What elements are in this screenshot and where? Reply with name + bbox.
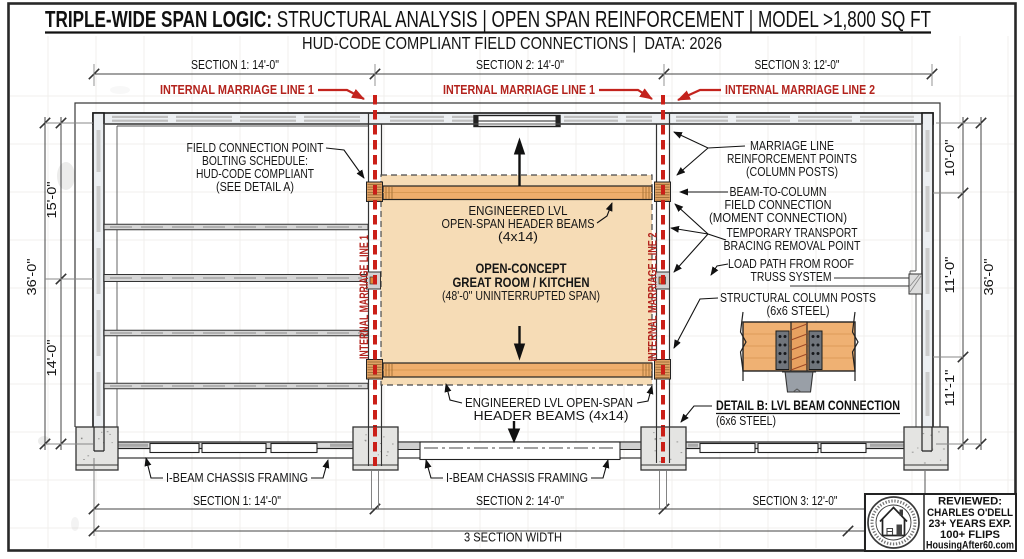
- svg-text:36'-0": 36'-0": [25, 259, 39, 296]
- svg-text:HEADER BEAMS (4x14): HEADER BEAMS (4x14): [474, 408, 629, 423]
- svg-text:INTERNAL MARRIAGE LINE 1: INTERNAL MARRIAGE LINE 1: [443, 83, 595, 97]
- svg-text:MARRIAGE LINE: MARRIAGE LINE: [750, 139, 834, 153]
- svg-text:15'-0": 15'-0": [45, 182, 59, 219]
- svg-text:REVIEWED:: REVIEWED:: [938, 496, 1002, 508]
- svg-text:(SEE DETAIL A): (SEE DETAIL A): [216, 180, 294, 194]
- svg-text:FIELD CONNECTION POINT: FIELD CONNECTION POINT: [187, 141, 324, 155]
- svg-text:SECTION 1: 14'-0": SECTION 1: 14'-0": [191, 58, 279, 72]
- svg-text:HousingAfter60.com: HousingAfter60.com: [926, 540, 1014, 552]
- svg-text:ENGINEERED LVL: ENGINEERED LVL: [469, 204, 568, 218]
- svg-text:36'-0": 36'-0": [982, 259, 996, 296]
- svg-text:HUD-CODE COMPLIANT: HUD-CODE COMPLIANT: [196, 167, 314, 181]
- svg-text:(6x6 STEEL): (6x6 STEEL): [767, 304, 830, 318]
- svg-text:INTERNAL MARRIAGE LINE 2: INTERNAL MARRIAGE LINE 2: [725, 83, 875, 97]
- svg-text:(COLUMN POSTS): (COLUMN POSTS): [746, 165, 838, 179]
- svg-text:11'-1": 11'-1": [943, 370, 957, 407]
- svg-text:I-BEAM CHASSIS FRAMING: I-BEAM CHASSIS FRAMING: [166, 471, 308, 485]
- svg-text:OPEN-SPAN HEADER BEAMS: OPEN-SPAN HEADER BEAMS: [442, 217, 595, 231]
- svg-text:(6x6 STEEL): (6x6 STEEL): [716, 413, 776, 428]
- svg-text:11'-0": 11'-0": [943, 257, 957, 294]
- svg-text:(MOMENT CONNECTION): (MOMENT CONNECTION): [709, 211, 847, 225]
- svg-text:SECTION 3: 12'-0": SECTION 3: 12'-0": [755, 58, 840, 72]
- svg-text:SECTION 2: 14'-0": SECTION 2: 14'-0": [476, 494, 564, 508]
- svg-text:INTERNAL MARRIAGE LINE 1: INTERNAL MARRIAGE LINE 1: [359, 235, 371, 359]
- svg-text:BRACING REMOVAL POINT: BRACING REMOVAL POINT: [724, 239, 861, 253]
- svg-text:REINFORCEMENT POINTS: REINFORCEMENT POINTS: [727, 152, 857, 166]
- svg-text:FIELD CONNECTION: FIELD CONNECTION: [725, 198, 832, 212]
- svg-text:OPEN-CONCEPT: OPEN-CONCEPT: [476, 261, 568, 276]
- svg-text:I-BEAM CHASSIS FRAMING: I-BEAM CHASSIS FRAMING: [446, 471, 588, 485]
- svg-text:(48'-0" UNINTERRUPTED SPAN): (48'-0" UNINTERRUPTED SPAN): [442, 289, 600, 303]
- svg-text:TEMPORARY TRANSPORT: TEMPORARY TRANSPORT: [727, 226, 858, 240]
- svg-text:SECTION 2: 14'-0": SECTION 2: 14'-0": [476, 58, 564, 72]
- svg-text:SECTION 3: 12'-0": SECTION 3: 12'-0": [753, 494, 838, 508]
- svg-text:DETAIL B: LVL BEAM CONNECTION: DETAIL B: LVL BEAM CONNECTION: [716, 398, 900, 413]
- svg-text:LOAD PATH FROM ROOF: LOAD PATH FROM ROOF: [728, 257, 854, 271]
- svg-text:INTERNAL MARRIAGE LINE 2: INTERNAL MARRIAGE LINE 2: [648, 233, 660, 362]
- svg-text:INTERNAL MARRIAGE LINE 1: INTERNAL MARRIAGE LINE 1: [160, 83, 314, 97]
- svg-text:HUD-CODE COMPLIANT FIELD CONNE: HUD-CODE COMPLIANT FIELD CONNECTIONS | D…: [302, 33, 722, 53]
- svg-text:TRIPLE-WIDE SPAN LOGIC: STRUCT: TRIPLE-WIDE SPAN LOGIC: STRUCTURAL ANALY…: [45, 6, 931, 32]
- svg-text:TRUSS SYSTEM: TRUSS SYSTEM: [751, 270, 832, 284]
- svg-text:14'-0": 14'-0": [45, 340, 59, 377]
- svg-text:STRUCTURAL COLUMN POSTS: STRUCTURAL COLUMN POSTS: [720, 291, 876, 305]
- svg-text:GREAT ROOM / KITCHEN: GREAT ROOM / KITCHEN: [453, 275, 590, 290]
- svg-text:10'-0": 10'-0": [943, 140, 957, 177]
- svg-text:SECTION 1: 14'-0": SECTION 1: 14'-0": [193, 494, 281, 508]
- svg-text:BEAM-TO-COLUMN: BEAM-TO-COLUMN: [730, 185, 827, 199]
- svg-text:(4x14): (4x14): [498, 230, 538, 244]
- svg-text:BOLTING SCHEDULE:: BOLTING SCHEDULE:: [202, 154, 308, 168]
- svg-text:3 SECTION WIDTH: 3 SECTION WIDTH: [464, 531, 562, 545]
